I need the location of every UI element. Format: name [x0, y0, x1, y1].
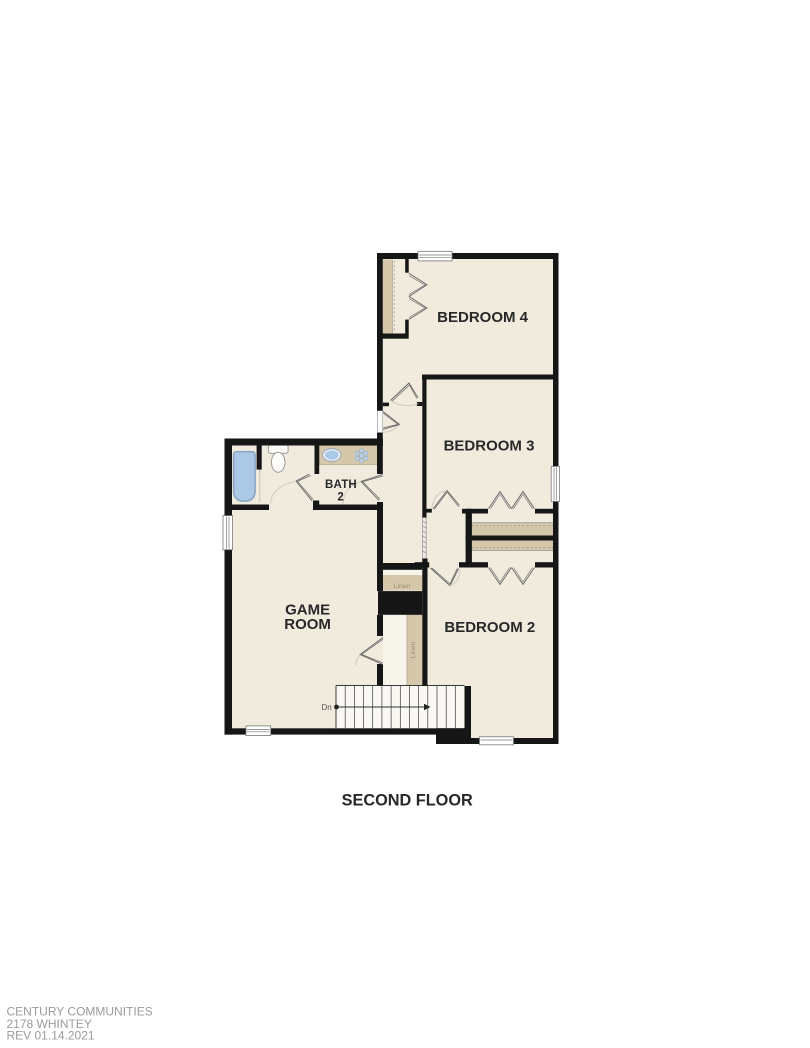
svg-text:BEDROOM 3: BEDROOM 3 [444, 438, 535, 455]
svg-text:BATH: BATH [325, 479, 357, 491]
svg-text:Linen: Linen [394, 583, 411, 590]
svg-text:SECOND FLOOR: SECOND FLOOR [342, 791, 473, 809]
svg-text:Dn: Dn [322, 703, 332, 712]
svg-text:Linen: Linen [410, 641, 417, 658]
svg-text:REV 01.14.2021: REV 01.14.2021 [7, 1028, 95, 1042]
svg-text:ROOM: ROOM [284, 616, 331, 633]
svg-text:BEDROOM 2: BEDROOM 2 [444, 619, 535, 636]
svg-text:2: 2 [337, 492, 343, 504]
svg-text:BEDROOM 4: BEDROOM 4 [437, 309, 529, 326]
